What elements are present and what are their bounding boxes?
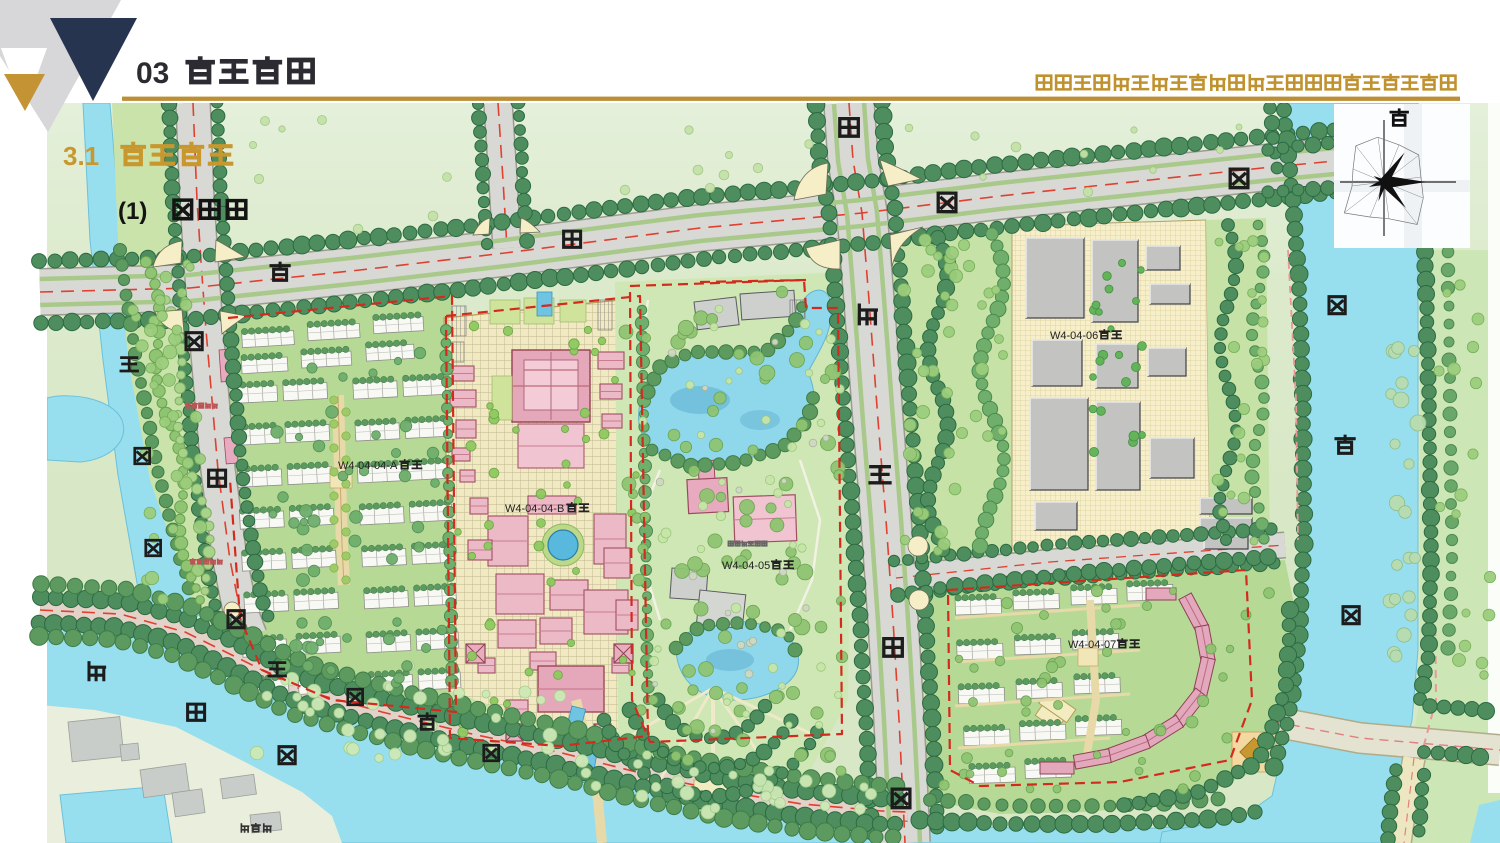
svg-text:W4-04-04-A: W4-04-04-A: [338, 460, 398, 472]
svg-text:W4-04-07: W4-04-07: [1068, 639, 1116, 651]
svg-text:W4-04-04-B: W4-04-04-B: [505, 503, 564, 515]
svg-text:W4-04-05: W4-04-05: [722, 560, 770, 572]
svg-text:3.1: 3.1: [63, 141, 99, 171]
svg-text:03: 03: [136, 57, 169, 90]
svg-text:(1): (1): [118, 198, 147, 225]
svg-text:W4-04-06: W4-04-06: [1050, 330, 1098, 342]
